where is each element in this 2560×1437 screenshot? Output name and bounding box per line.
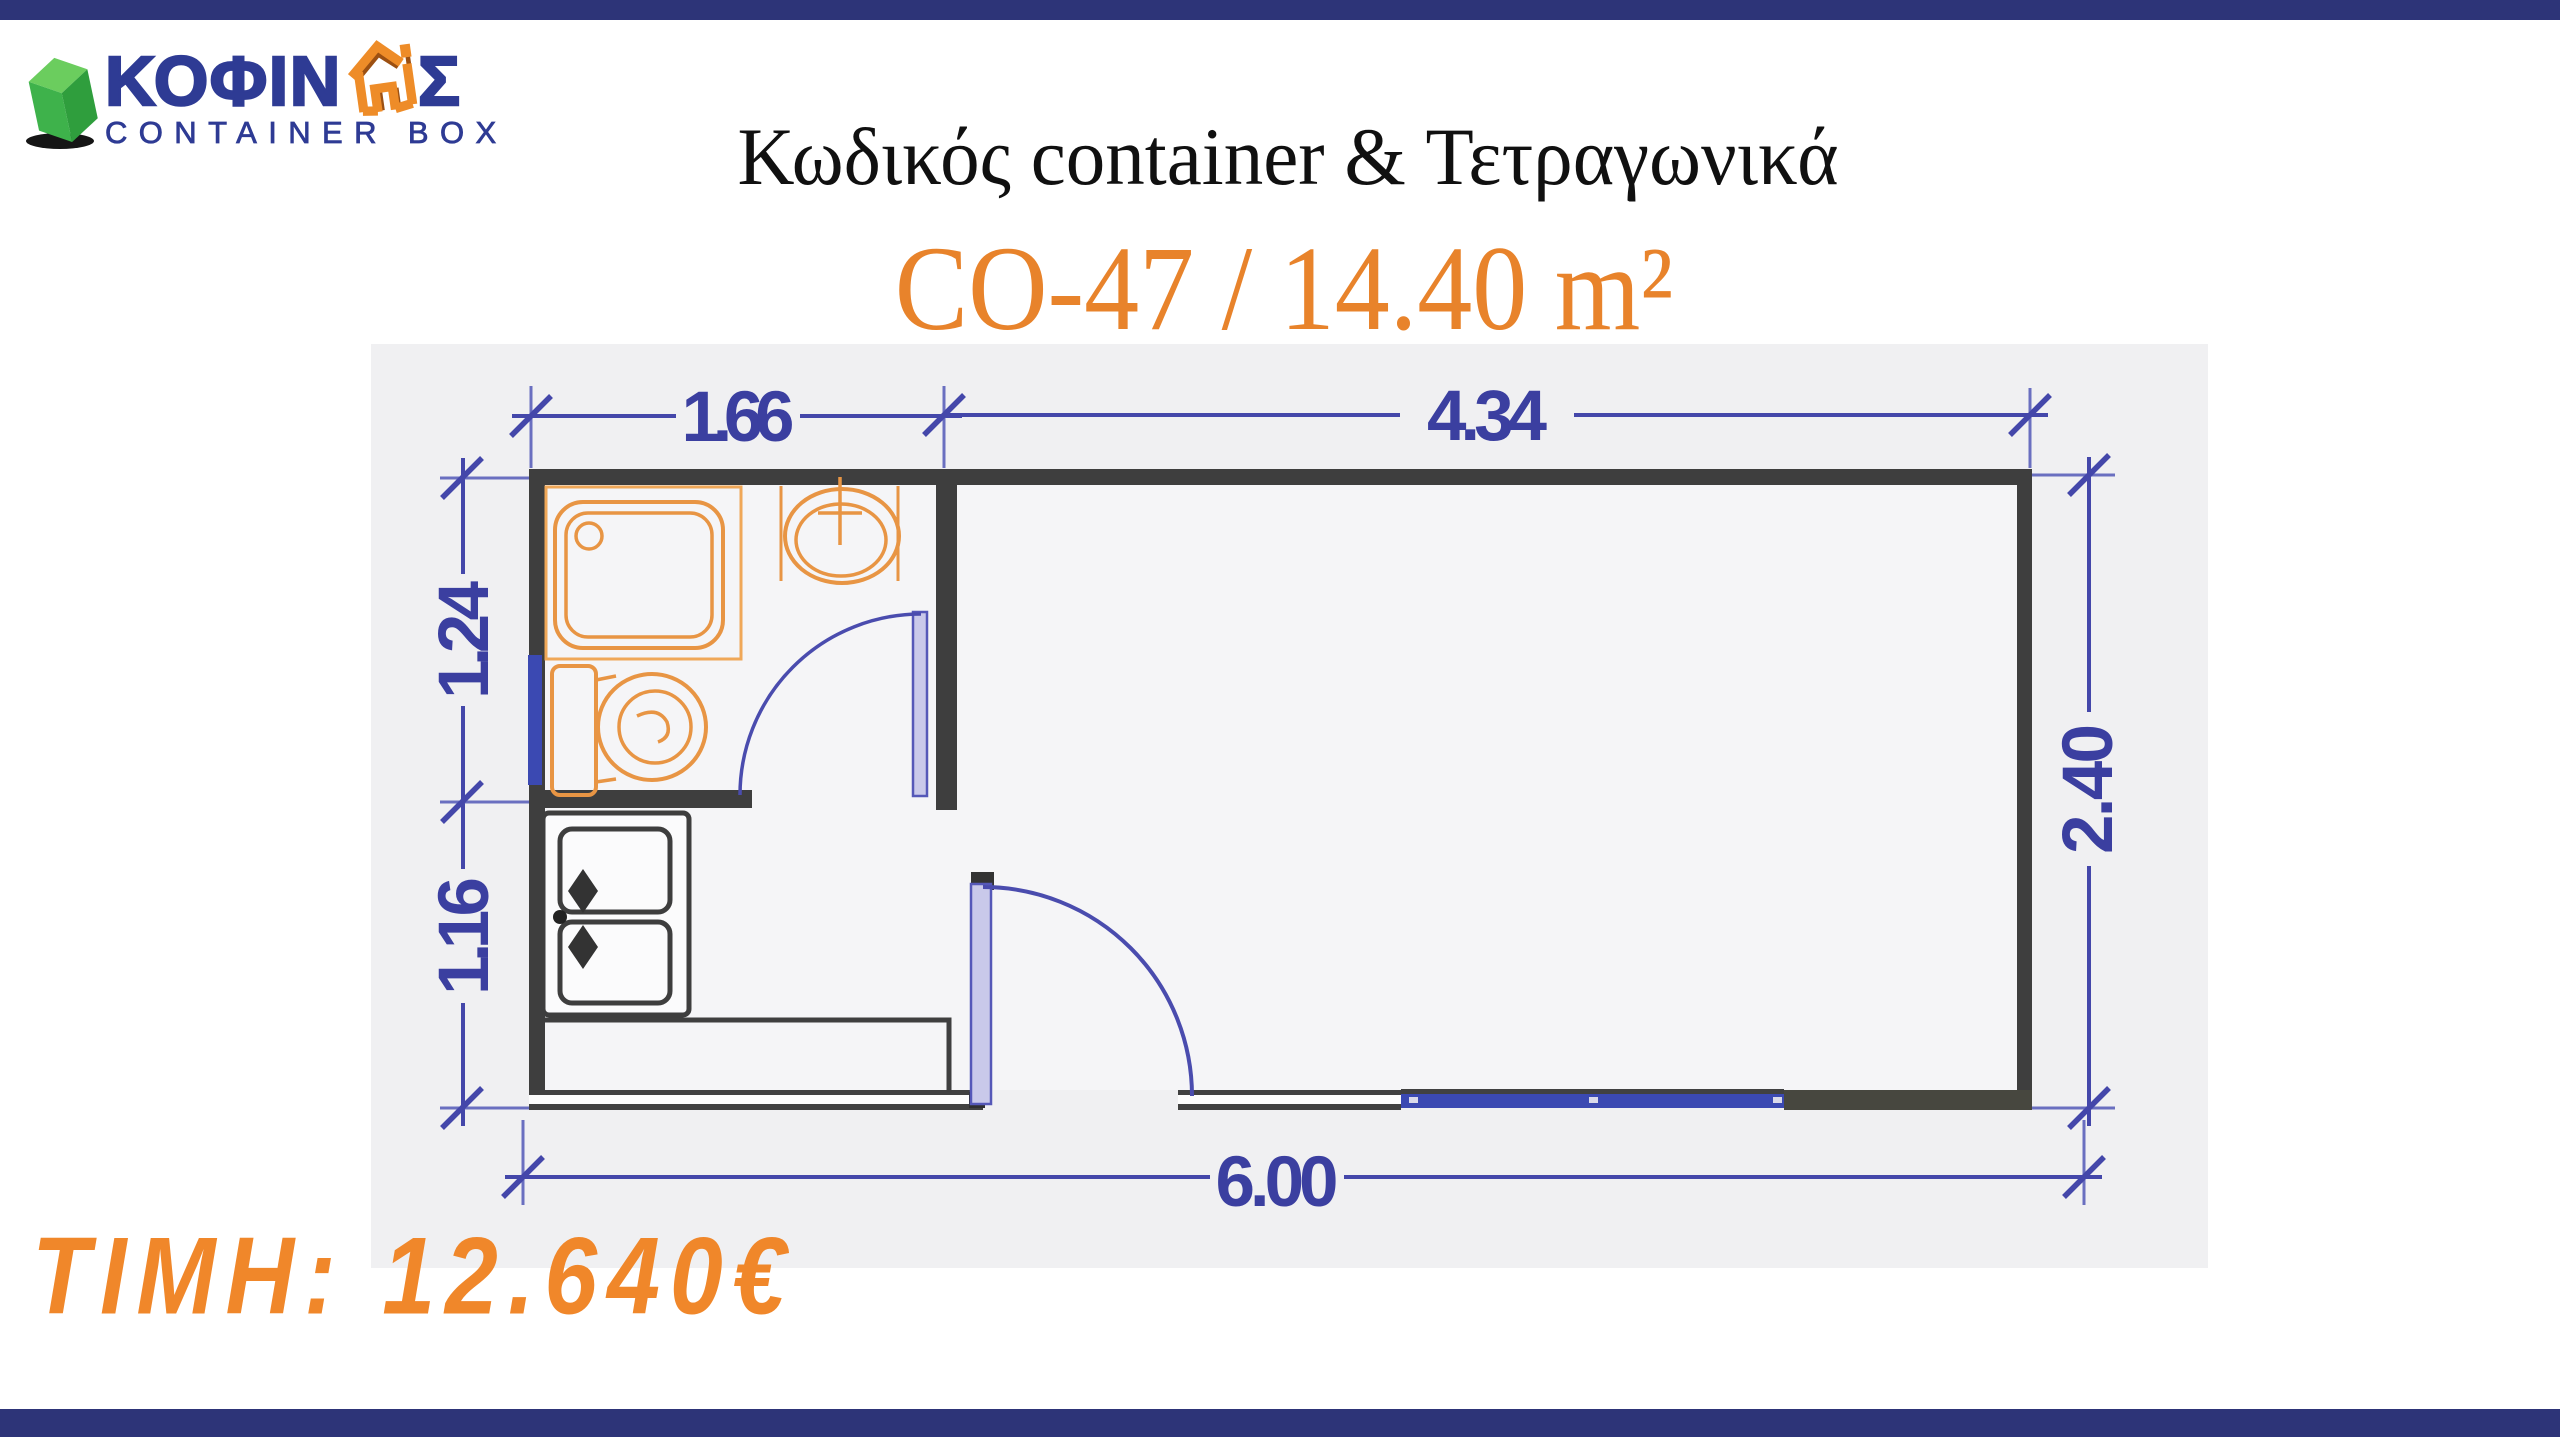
svg-text:6.00: 6.00 <box>1216 1143 1339 1222</box>
svg-text:4.34: 4.34 <box>1427 377 1548 456</box>
svg-text:ΚΟΦΙΝ: ΚΟΦΙΝ <box>105 42 342 120</box>
svg-text:1.16: 1.16 <box>425 877 504 995</box>
svg-text:1.66: 1.66 <box>682 378 795 457</box>
svg-text:1.24: 1.24 <box>425 581 504 700</box>
svg-text:Σ: Σ <box>418 42 460 120</box>
svg-text:2.40: 2.40 <box>2049 724 2128 854</box>
svg-text:CONTAINER BOX: CONTAINER BOX <box>105 115 508 150</box>
